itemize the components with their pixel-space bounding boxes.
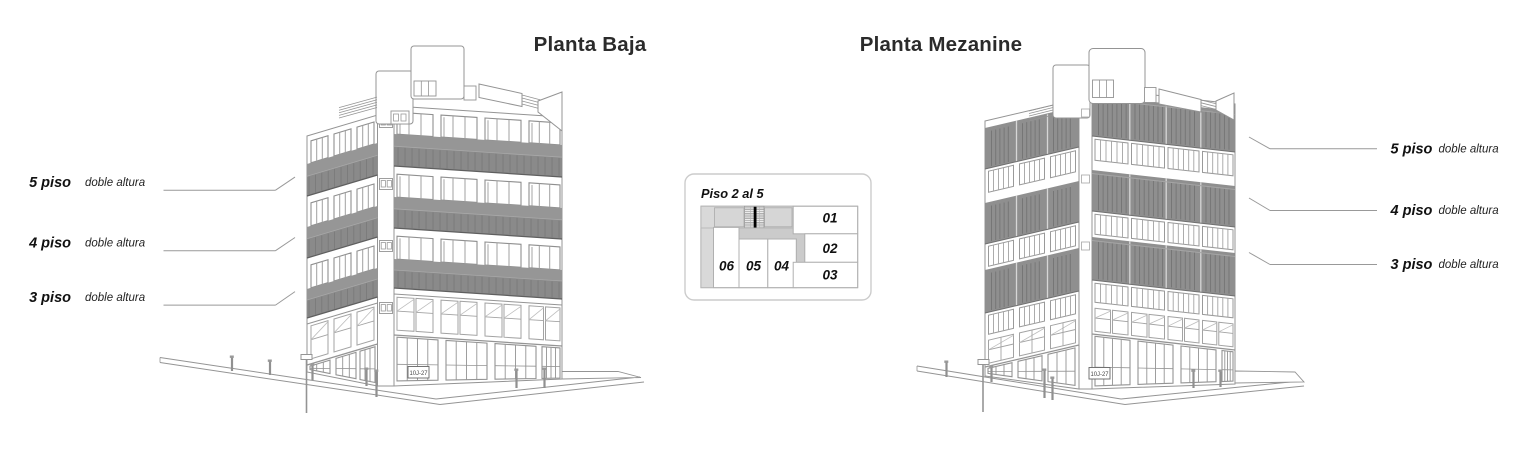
svg-text:doble altura: doble altura <box>1439 143 1499 155</box>
svg-text:doble altura: doble altura <box>1439 205 1499 217</box>
svg-text:02: 02 <box>822 241 838 256</box>
svg-text:Planta Mezanine: Planta Mezanine <box>860 33 1023 56</box>
svg-text:4 piso: 4 piso <box>1390 203 1433 219</box>
svg-text:10J-27: 10J-27 <box>1091 371 1110 378</box>
svg-text:10J-27: 10J-27 <box>410 370 429 377</box>
svg-text:3 piso: 3 piso <box>29 290 71 306</box>
svg-text:doble altura: doble altura <box>85 177 145 189</box>
svg-text:04: 04 <box>774 259 790 274</box>
svg-text:Piso 2 al 5: Piso 2 al 5 <box>701 186 764 201</box>
svg-text:doble altura: doble altura <box>85 292 145 304</box>
svg-text:03: 03 <box>822 268 838 283</box>
svg-text:3 piso: 3 piso <box>1391 257 1433 273</box>
svg-text:5 piso: 5 piso <box>29 175 71 191</box>
svg-text:06: 06 <box>719 259 735 274</box>
svg-text:01: 01 <box>822 211 837 226</box>
svg-text:05: 05 <box>746 259 762 274</box>
svg-text:doble altura: doble altura <box>85 238 145 250</box>
svg-text:4 piso: 4 piso <box>28 236 71 252</box>
svg-text:5 piso: 5 piso <box>1391 141 1433 157</box>
svg-text:Planta Baja: Planta Baja <box>534 33 647 56</box>
svg-text:doble altura: doble altura <box>1439 259 1499 271</box>
